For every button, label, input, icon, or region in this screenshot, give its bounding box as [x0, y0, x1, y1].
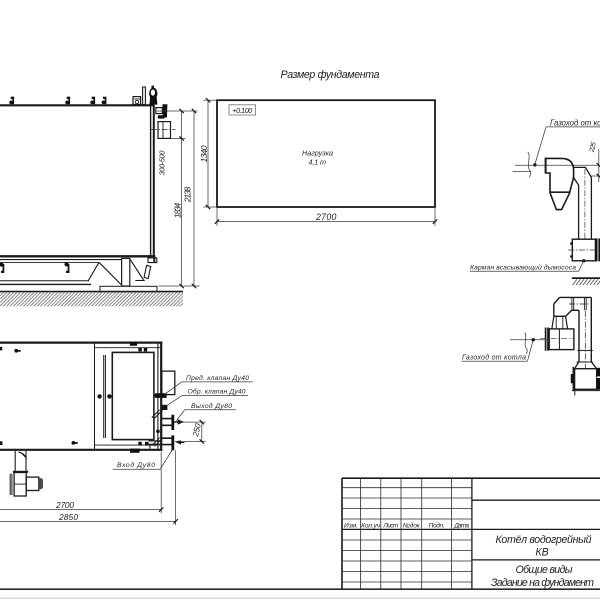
- svg-text:Газоход от котла: Газоход от котла: [550, 118, 600, 127]
- svg-text:Общие виды: Общие виды: [516, 564, 573, 576]
- svg-text:Газоход от котла: Газоход от котла: [462, 353, 526, 361]
- svg-text:Котёл водогрейный: Котёл водогрейный: [496, 534, 592, 546]
- svg-text:Кол.уч: Кол.уч: [361, 523, 381, 530]
- svg-text:1340: 1340: [199, 145, 209, 162]
- svg-text:Лист: Лист: [382, 523, 399, 530]
- svg-text:Изм.: Изм.: [344, 523, 358, 530]
- svg-text:300-500: 300-500: [158, 150, 167, 176]
- svg-text:Выход Ду80: Выход Ду80: [191, 402, 232, 410]
- svg-text:Дата: Дата: [453, 523, 469, 530]
- svg-text:№док: №док: [403, 522, 421, 530]
- svg-text:2700: 2700: [55, 500, 74, 510]
- svg-text:КВ: КВ: [535, 547, 548, 559]
- svg-text:Пред. клапан Ду40: Пред. клапан Ду40: [186, 374, 249, 382]
- svg-text:Обр. клапан Ду40: Обр. клапан Ду40: [188, 388, 246, 396]
- svg-text:Карман всасывающий дымососа: Карман всасывающий дымососа: [470, 263, 576, 271]
- svg-text:Размер фундамента: Размер фундамента: [281, 69, 380, 81]
- svg-text:Подп.: Подп.: [429, 522, 445, 530]
- svg-text:Нагрузка: Нагрузка: [302, 148, 333, 157]
- svg-text:4,1 т: 4,1 т: [309, 158, 327, 167]
- svg-text:2850: 2850: [58, 512, 78, 522]
- svg-text:Вход Ду80: Вход Ду80: [117, 461, 155, 469]
- svg-text:2138: 2138: [183, 187, 193, 204]
- svg-text:2700: 2700: [315, 212, 337, 222]
- svg-text:1834: 1834: [172, 203, 182, 219]
- svg-text:Задание на фундамент: Задание на фундамент: [491, 577, 594, 589]
- svg-text:+0.100: +0.100: [232, 106, 252, 115]
